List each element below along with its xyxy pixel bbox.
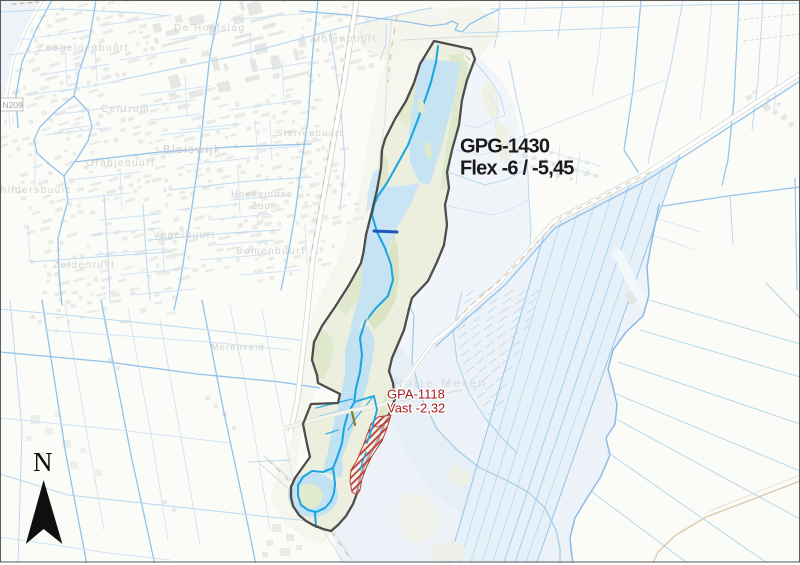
svg-text:N209: N209 bbox=[3, 100, 24, 110]
svg-text:Vast -2,32: Vast -2,32 bbox=[387, 401, 445, 416]
svg-text:Merenveld: Merenveld bbox=[211, 342, 265, 352]
svg-text:N: N bbox=[33, 447, 53, 477]
svg-text:Molenbuurt: Molenbuurt bbox=[312, 34, 377, 45]
svg-text:Flex -6 / -5,45: Flex -6 / -5,45 bbox=[460, 158, 574, 180]
svg-text:Centrum: Centrum bbox=[101, 104, 150, 115]
svg-text:Hoekeindse: Hoekeindse bbox=[231, 189, 293, 200]
svg-text:GPG-1430: GPG-1430 bbox=[460, 136, 550, 158]
svg-text:De Hoefslag: De Hoefslag bbox=[174, 23, 246, 34]
svg-text:Bomenbuurt: Bomenbuurt bbox=[236, 246, 305, 257]
svg-text:Zeldenrust: Zeldenrust bbox=[53, 260, 115, 271]
svg-text:Sterrenbuurt: Sterrenbuurt bbox=[276, 128, 343, 139]
svg-text:Zoom: Zoom bbox=[251, 201, 280, 212]
svg-text:Bleiswijk: Bleiswijk bbox=[163, 144, 221, 156]
svg-text:Zeeheldenbuurt: Zeeheldenbuurt bbox=[38, 43, 129, 54]
svg-text:GPA-1118: GPA-1118 bbox=[387, 387, 445, 402]
svg-text:Schildersbuurt: Schildersbuurt bbox=[0, 185, 71, 196]
svg-text:Oranjebuurt: Oranjebuurt bbox=[86, 158, 155, 169]
svg-text:Vogelbuurt: Vogelbuurt bbox=[153, 230, 216, 241]
